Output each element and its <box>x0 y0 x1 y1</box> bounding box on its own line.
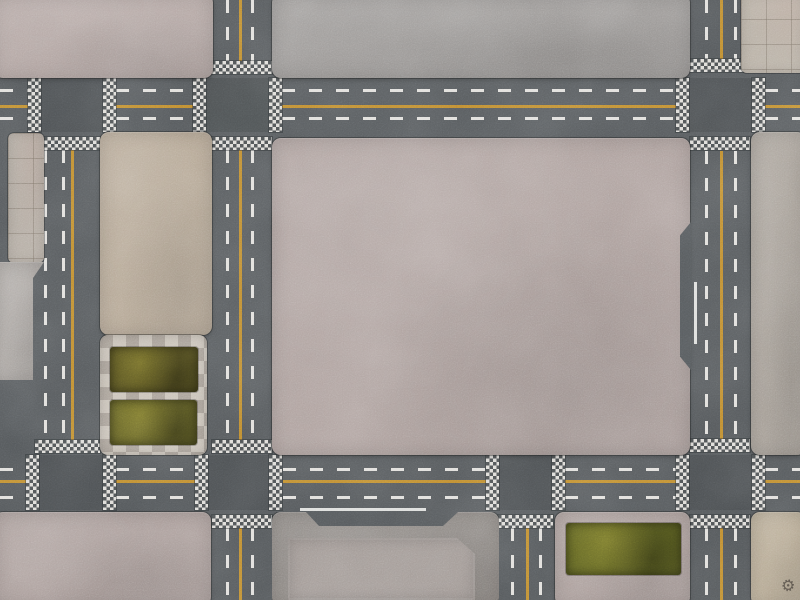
crosswalk <box>752 78 765 132</box>
lane-dash <box>282 89 676 92</box>
lane-dash <box>765 496 800 499</box>
grass-patch <box>110 347 198 392</box>
crosswalk <box>44 137 100 150</box>
lane-dash <box>765 89 800 92</box>
center-line <box>71 150 74 440</box>
intersection-shade <box>208 455 269 510</box>
intersection-shade <box>688 455 752 510</box>
crosswalk <box>26 455 39 510</box>
crosswalk <box>212 440 272 453</box>
crosswalk <box>498 515 553 528</box>
lane-dash <box>565 496 676 499</box>
crosswalk <box>552 455 565 510</box>
center-line <box>765 480 800 483</box>
lane-dash <box>44 150 47 440</box>
lane-dash <box>734 151 737 439</box>
lane-dash <box>765 468 800 471</box>
center-line <box>720 528 723 600</box>
center-line <box>239 528 242 600</box>
lane-dash <box>511 528 514 600</box>
crosswalk <box>486 455 499 510</box>
lane-dash <box>226 528 229 600</box>
crosswalk <box>212 61 272 74</box>
lane-dash <box>734 528 737 600</box>
crosswalk <box>212 515 272 528</box>
crosswalk <box>690 137 750 150</box>
center-line <box>0 480 26 483</box>
intersection-shade <box>498 455 552 510</box>
center-line <box>239 0 242 61</box>
crosswalk <box>103 455 116 510</box>
intersection-shade <box>688 78 752 132</box>
lane-dash <box>251 0 254 61</box>
lane-dash <box>116 468 195 471</box>
crosswalk <box>212 137 272 150</box>
lane-dash <box>282 117 676 120</box>
crosswalk <box>676 78 689 132</box>
lane-dash <box>251 150 254 440</box>
gear-logo-icon: ⚙ <box>777 575 798 596</box>
lane-dash <box>226 0 229 61</box>
crosswalk <box>690 439 750 452</box>
crosswalk <box>35 440 100 453</box>
lane-dash <box>283 496 486 499</box>
crosswalk <box>195 455 208 510</box>
edge-line <box>694 282 697 344</box>
lane-dash <box>705 528 708 600</box>
lane-dash <box>62 150 65 440</box>
lane-dash <box>251 528 254 600</box>
center-line <box>116 105 193 108</box>
crosswalk <box>690 515 750 528</box>
lane-dash <box>705 151 708 439</box>
center-line <box>0 105 28 108</box>
center-line <box>116 480 195 483</box>
lane-dash <box>539 528 542 600</box>
lane-dash <box>765 117 800 120</box>
city-block-tan <box>100 132 212 335</box>
city-block-right <box>751 132 800 455</box>
lane-dash <box>116 117 193 120</box>
sidewalk-tiles-left <box>8 133 44 263</box>
battle-mat-map: ⚙ <box>0 0 800 600</box>
center-line <box>720 151 723 439</box>
lane-dash <box>0 468 26 471</box>
lane-dash <box>116 496 195 499</box>
center-line <box>765 105 800 108</box>
center-line <box>283 480 486 483</box>
grass-patch <box>566 523 681 575</box>
lane-dash <box>705 0 708 59</box>
crosswalk <box>28 78 41 132</box>
asphalt-notch <box>680 222 691 370</box>
lane-dash <box>0 496 26 499</box>
crosswalk <box>193 78 206 132</box>
sidewalk-concrete-left <box>0 262 44 380</box>
crosswalk <box>103 78 116 132</box>
roof-panel <box>288 538 475 600</box>
stop-line <box>300 508 426 511</box>
city-block-center <box>272 138 690 455</box>
lane-dash <box>116 89 193 92</box>
center-line <box>239 150 242 440</box>
city-block-top-left <box>0 0 213 78</box>
center-line <box>565 480 676 483</box>
crosswalk <box>676 455 689 510</box>
intersection-shade <box>30 78 105 132</box>
center-line <box>720 0 723 59</box>
lane-dash <box>283 468 486 471</box>
lane-dash <box>565 468 676 471</box>
center-line <box>282 105 676 108</box>
city-block-top-mid <box>272 0 690 78</box>
crosswalk <box>752 455 765 510</box>
city-block-bottom-left <box>0 512 211 600</box>
lane-dash <box>0 117 28 120</box>
plaza-tiles-top-right <box>741 0 800 73</box>
lane-dash <box>0 89 28 92</box>
grass-patch <box>110 400 197 445</box>
intersection-shade <box>206 78 269 132</box>
lane-dash <box>734 0 737 59</box>
lane-dash <box>226 150 229 440</box>
center-line <box>526 528 529 600</box>
crosswalk <box>269 455 282 510</box>
crosswalk <box>269 78 282 132</box>
